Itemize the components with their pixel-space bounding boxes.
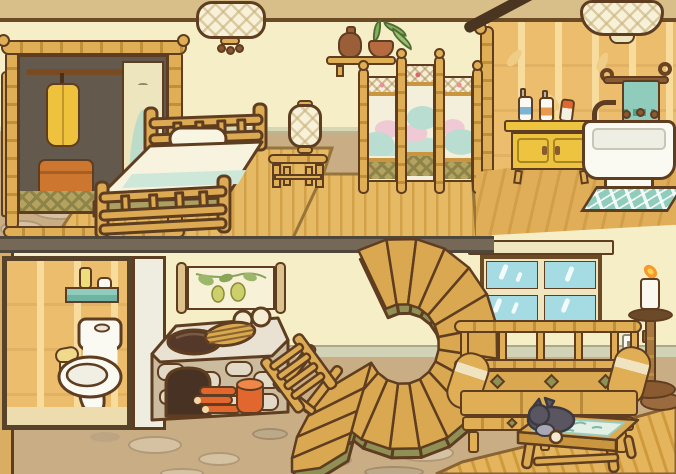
screen-finial <box>396 48 407 59</box>
screen-panel <box>367 76 397 182</box>
wardrobe-finial <box>177 34 190 47</box>
screen-finial <box>434 48 445 59</box>
clothes-rod <box>26 69 130 75</box>
table-lantern <box>288 104 322 148</box>
screen-finial <box>358 60 369 71</box>
folding-chair[interactable] <box>266 324 352 418</box>
panel-lattice <box>369 78 395 96</box>
scene <box>0 0 676 474</box>
door-handle <box>555 146 560 155</box>
faucet <box>592 100 616 120</box>
panel-diamond <box>369 158 395 179</box>
soap-pump <box>97 277 112 289</box>
ceiling <box>0 0 676 19</box>
screen-post <box>434 56 445 194</box>
panel-diamond <box>544 374 560 390</box>
glass-shine <box>564 266 575 283</box>
log-end <box>194 397 201 404</box>
lantern-tassel <box>217 44 226 53</box>
glass-shine <box>515 272 522 283</box>
ceiling-lantern[interactable] <box>192 0 270 54</box>
alcove-floor <box>7 407 127 425</box>
shampoo-bottle <box>79 267 92 289</box>
lantern-body <box>196 1 266 39</box>
sofa-post <box>498 331 507 361</box>
toilet-alcove[interactable] <box>2 256 132 430</box>
faucet-knob <box>636 108 645 117</box>
basin <box>582 120 676 180</box>
pump-bottle <box>539 97 554 122</box>
faucet-knob <box>650 110 659 119</box>
panel-diamond <box>407 152 433 176</box>
bamboo-leaf <box>505 47 525 68</box>
screen-post <box>358 68 369 194</box>
shelf-bracket <box>336 65 344 77</box>
lamp-base <box>297 146 313 154</box>
glass-shine <box>511 302 519 315</box>
candle <box>640 278 660 310</box>
sofa-leg <box>468 431 479 453</box>
screen-panel <box>405 64 435 182</box>
panel-painting <box>407 90 433 152</box>
panel-lattice <box>407 66 433 86</box>
sofa-post <box>574 331 583 361</box>
wardrobe-post-left <box>5 50 19 230</box>
panel-painting <box>369 100 395 156</box>
screen-panel <box>443 76 473 182</box>
toilet-shelf-edge <box>65 295 119 303</box>
pump-bottle <box>518 96 533 122</box>
window-pane <box>544 261 596 289</box>
flame-core <box>646 267 654 275</box>
scroll-roller <box>176 262 187 314</box>
bathroom-ceiling-lamp[interactable] <box>576 0 668 46</box>
lantern-tassel <box>226 46 235 55</box>
scroll-painting <box>192 270 270 306</box>
panel-painting <box>445 100 471 156</box>
wardrobe-top-rail <box>1 40 187 55</box>
rack-bracket <box>658 62 672 76</box>
lantern-tassel <box>235 44 244 53</box>
sleeping-cat[interactable] <box>524 398 580 442</box>
glass-shine <box>560 298 570 314</box>
log-end <box>202 406 209 413</box>
panel-diamond <box>445 158 471 179</box>
orange-pail[interactable] <box>236 378 266 416</box>
basin-interior <box>592 128 666 150</box>
stool-top <box>268 154 328 164</box>
cabinet-leg <box>513 170 523 185</box>
lamp-shade <box>580 0 664 36</box>
hanging-robe <box>46 83 80 147</box>
cabinet-body <box>511 132 591 170</box>
washbasin[interactable] <box>582 100 676 200</box>
sofa-post <box>536 331 545 361</box>
scroll-roller <box>275 262 286 314</box>
stool-rung <box>274 174 322 180</box>
bath-mat[interactable] <box>580 186 676 212</box>
bed[interactable] <box>88 102 278 242</box>
hanging-scroll[interactable] <box>176 258 288 318</box>
lamp-cap <box>609 34 635 44</box>
screen-finial <box>472 60 483 71</box>
screen-post <box>396 56 407 194</box>
firewood[interactable] <box>193 386 241 418</box>
faucet-knob <box>622 110 631 119</box>
pail-top <box>236 378 264 391</box>
mirror-bird-motif <box>138 83 148 87</box>
bedside-stool-lantern[interactable] <box>268 100 330 188</box>
door-handle <box>542 146 547 155</box>
panel-diamond <box>490 374 506 390</box>
panel-lattice <box>445 78 471 96</box>
